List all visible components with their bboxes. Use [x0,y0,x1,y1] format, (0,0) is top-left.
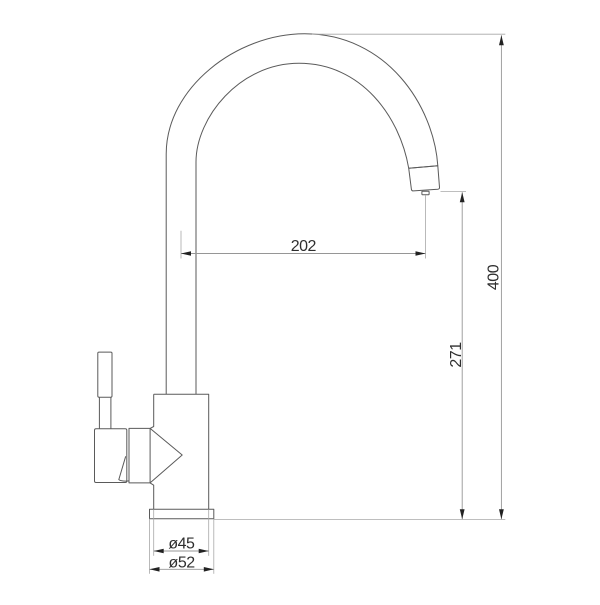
svg-text:271: 271 [448,342,465,368]
svg-text:ø45: ø45 [168,536,195,553]
svg-text:202: 202 [291,238,317,255]
svg-text:ø52: ø52 [169,555,196,572]
svg-text:400: 400 [486,264,503,290]
